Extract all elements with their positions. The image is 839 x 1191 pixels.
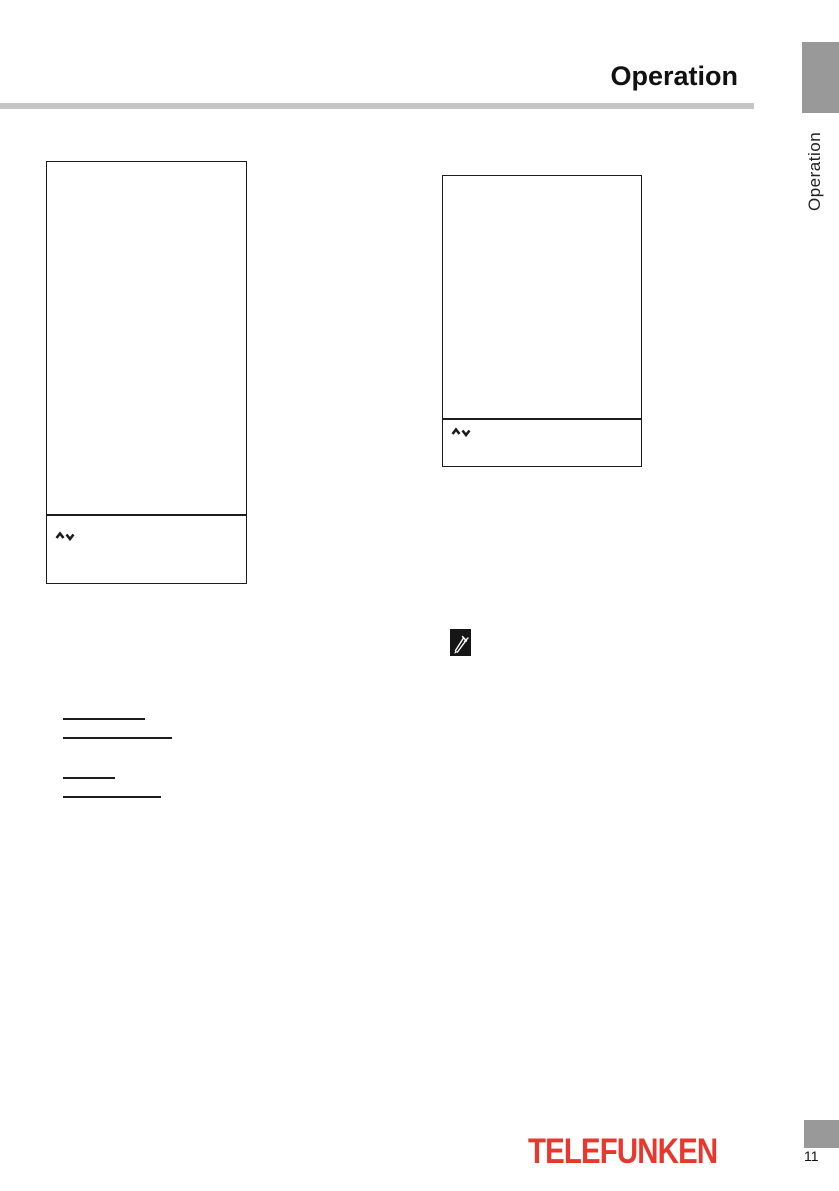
osd-menu-box-right <box>442 175 642 467</box>
osd-box-divider <box>47 514 246 516</box>
up-chevron-icon <box>57 534 64 539</box>
page-title: Operation <box>610 62 738 92</box>
section-tab-bottom <box>804 1120 839 1148</box>
down-chevron-icon <box>67 535 74 540</box>
osd-box-divider <box>443 418 641 420</box>
side-tab-label: Operation <box>805 127 832 215</box>
underline-rule <box>63 718 145 720</box>
page-number: 11 <box>804 1148 819 1164</box>
header-rule <box>0 103 754 109</box>
up-down-chevrons <box>451 427 472 437</box>
underline-rule <box>63 796 161 798</box>
section-tab-top <box>802 42 839 113</box>
osd-menu-box-left <box>46 161 247 584</box>
note-pencil-icon <box>450 629 471 656</box>
underline-rule <box>63 777 115 779</box>
brand-logo: TELEFUNKEN <box>528 1134 717 1169</box>
manual-page: Operation Operation TELEFUNKEN <box>0 0 839 1191</box>
up-down-chevrons <box>55 531 76 541</box>
underline-rule <box>63 737 172 739</box>
down-chevron-icon <box>463 431 470 436</box>
up-chevron-icon <box>453 430 460 435</box>
